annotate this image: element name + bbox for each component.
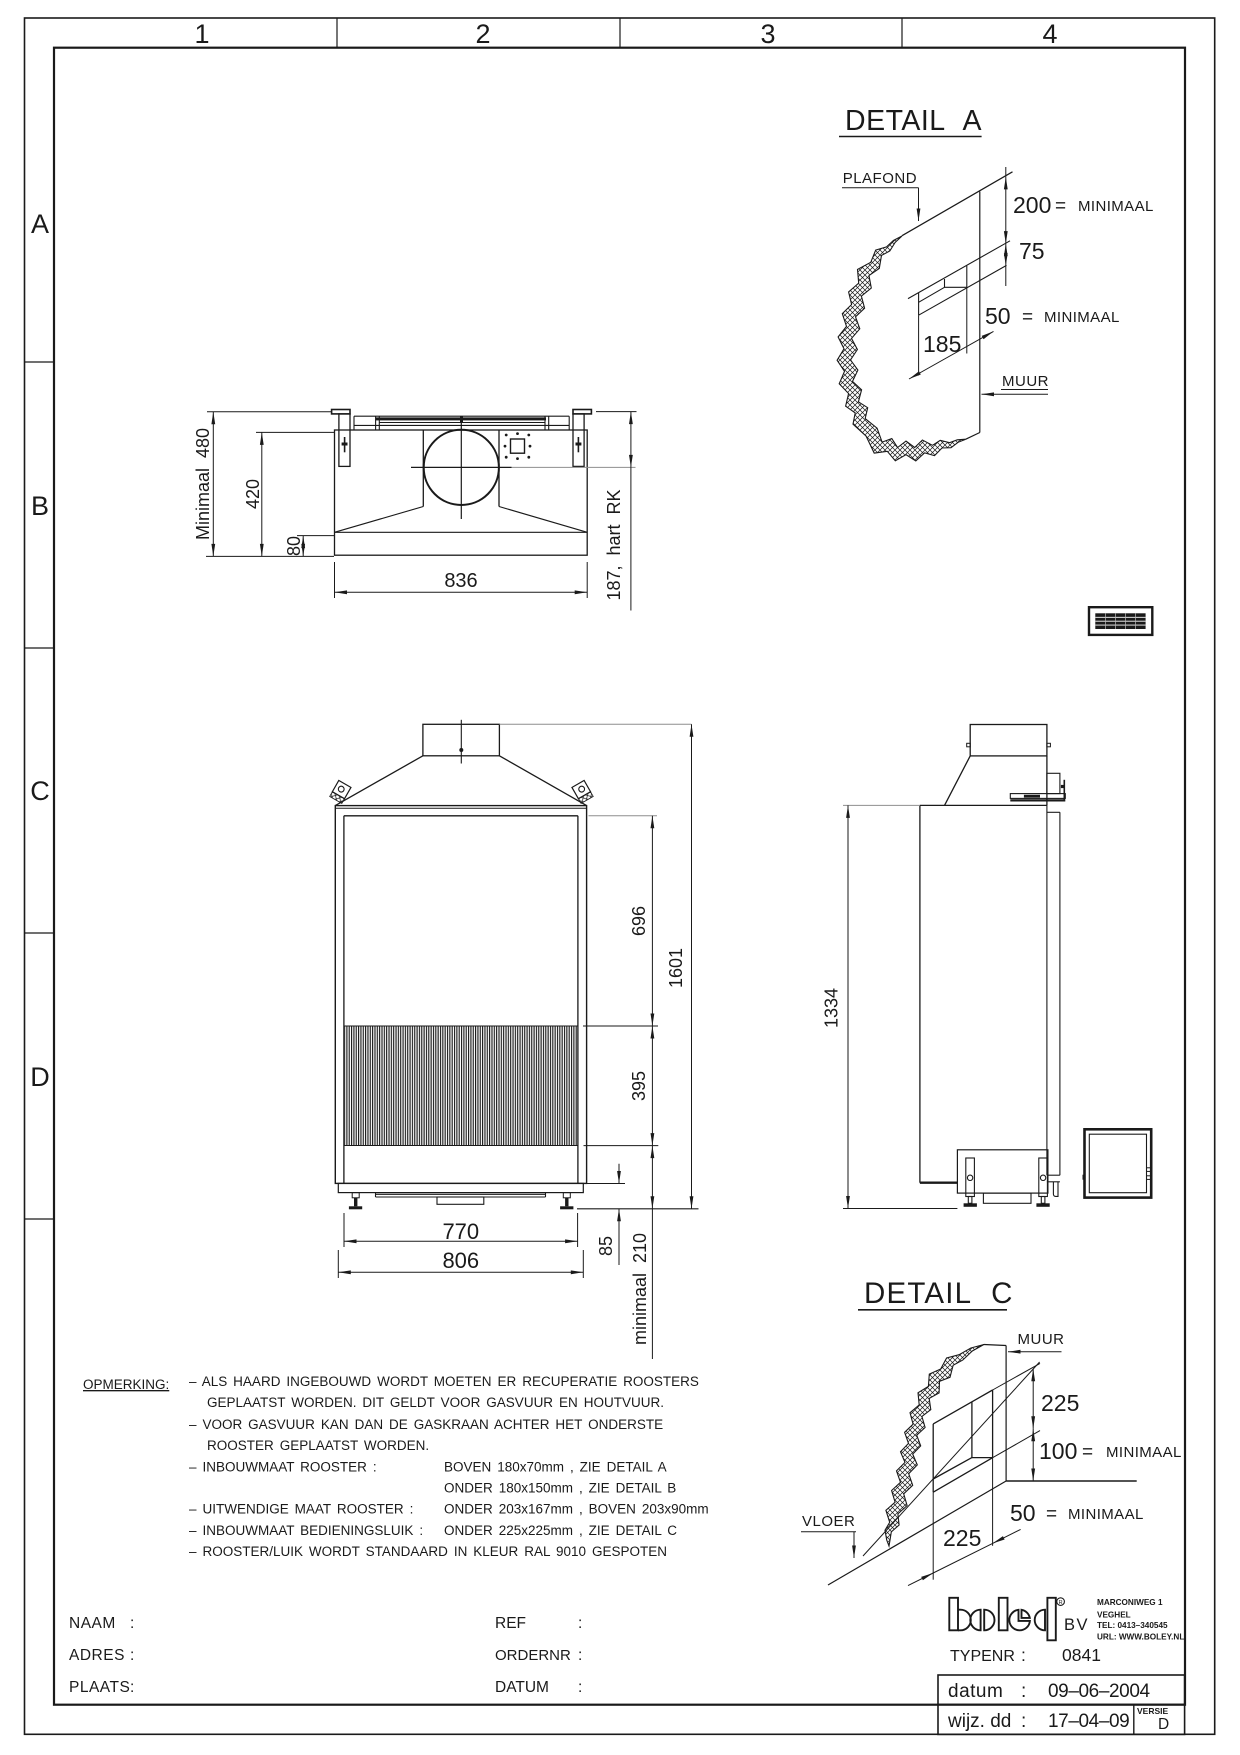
svg-text:MINIMAAL: MINIMAAL bbox=[1106, 1444, 1182, 1461]
svg-text::: : bbox=[1021, 1645, 1026, 1665]
svg-text:PLAATS: PLAATS bbox=[69, 1679, 130, 1696]
svg-text:ORDERNR: ORDERNR bbox=[495, 1647, 571, 1664]
svg-text:DATUM: DATUM bbox=[495, 1679, 549, 1696]
svg-text:50: 50 bbox=[1010, 1500, 1036, 1526]
svg-text:ONDER 225x225mm , ZIE DETA: ONDER 225x225mm , ZIE DETAIL C bbox=[444, 1523, 677, 1538]
svg-text:URL: WWW.BOLEY.NL: URL: WWW.BOLEY.NL bbox=[1097, 1633, 1184, 1642]
svg-text:PLAFOND: PLAFOND bbox=[843, 170, 917, 187]
svg-text:=: = bbox=[1022, 307, 1033, 328]
svg-text:– INBOUWMAAT BEDIENINGSLUIK: – INBOUWMAAT BEDIENINGSLUIK : bbox=[189, 1523, 423, 1538]
svg-text:ROOSTER GEPLAATST WORDEN.: ROOSTER GEPLAATST WORDEN. bbox=[207, 1438, 429, 1453]
svg-text:MINIMAAL: MINIMAAL bbox=[1044, 309, 1120, 326]
svg-text:VERSIE: VERSIE bbox=[1137, 1706, 1169, 1716]
svg-text:VEGHEL: VEGHEL bbox=[1097, 1611, 1131, 1620]
svg-text:– ROOSTER/LUIK WORDT STANDA: – ROOSTER/LUIK WORDT STANDAARD IN KLEUR … bbox=[189, 1544, 667, 1559]
svg-text:1334: 1334 bbox=[822, 988, 842, 1028]
svg-text:BV: BV bbox=[1064, 1616, 1089, 1634]
svg-text::: : bbox=[578, 1615, 582, 1632]
svg-text:D: D bbox=[1158, 1716, 1169, 1733]
svg-text:A: A bbox=[31, 209, 49, 239]
svg-text:225: 225 bbox=[943, 1525, 981, 1551]
svg-text:OPMERKING:: OPMERKING: bbox=[83, 1377, 169, 1392]
svg-text:=: = bbox=[1082, 1442, 1093, 1463]
svg-text:ONDER 180x150mm , ZIE DETA: ONDER 180x150mm , ZIE DETAIL B bbox=[444, 1481, 676, 1496]
svg-text:– UITWENDIGE MAAT ROOSTER: – UITWENDIGE MAAT ROOSTER : bbox=[189, 1502, 413, 1517]
svg-text:185: 185 bbox=[923, 331, 961, 357]
svg-text:1601: 1601 bbox=[666, 948, 686, 988]
svg-text:VLOER: VLOER bbox=[802, 1513, 855, 1530]
svg-text:836: 836 bbox=[444, 570, 477, 592]
svg-text:– ALS HAARD INGEBOUWD WORD: – ALS HAARD INGEBOUWD WORDT MOETEN ER RE… bbox=[189, 1374, 699, 1389]
svg-text:225: 225 bbox=[1041, 1390, 1079, 1416]
svg-text::: : bbox=[578, 1647, 582, 1664]
svg-text::: : bbox=[130, 1615, 134, 1632]
svg-text:806: 806 bbox=[442, 1248, 479, 1273]
svg-text:395: 395 bbox=[629, 1071, 649, 1101]
svg-text:C: C bbox=[30, 776, 50, 806]
svg-text:200: 200 bbox=[1013, 192, 1051, 218]
svg-text:ADRES: ADRES bbox=[69, 1647, 125, 1664]
svg-text:D: D bbox=[30, 1062, 50, 1092]
svg-text:100: 100 bbox=[1039, 1438, 1077, 1464]
svg-text:DETAIL C: DETAIL C bbox=[864, 1277, 1014, 1310]
svg-text:MUUR: MUUR bbox=[1002, 373, 1049, 390]
svg-text:420: 420 bbox=[243, 479, 263, 509]
svg-text::: : bbox=[578, 1679, 582, 1696]
svg-text:TEL: 0413–340545: TEL: 0413–340545 bbox=[1097, 1621, 1168, 1630]
svg-text::: : bbox=[1021, 1711, 1026, 1732]
svg-text::: : bbox=[130, 1647, 134, 1664]
svg-text:– INBOUWMAAT ROOSTER :: – INBOUWMAAT ROOSTER : bbox=[189, 1459, 377, 1474]
svg-text:MUUR: MUUR bbox=[1018, 1331, 1065, 1348]
svg-text:Minimaal 480: Minimaal 480 bbox=[193, 428, 213, 540]
svg-text:BOVEN 180x70mm , ZIE DETAI: BOVEN 180x70mm , ZIE DETAIL A bbox=[444, 1459, 667, 1474]
svg-text:R: R bbox=[1059, 1600, 1063, 1606]
svg-text:187, hart RK: 187, hart RK bbox=[604, 489, 624, 600]
svg-text:datum: datum bbox=[948, 1681, 1003, 1702]
svg-text:85: 85 bbox=[596, 1236, 616, 1256]
svg-text:REF: REF bbox=[495, 1615, 526, 1632]
svg-text:50: 50 bbox=[985, 303, 1011, 329]
svg-text:0841: 0841 bbox=[1062, 1645, 1101, 1665]
svg-text:4: 4 bbox=[1042, 19, 1057, 49]
svg-text:17–04–09: 17–04–09 bbox=[1048, 1711, 1129, 1732]
svg-text:DETAIL A: DETAIL A bbox=[845, 105, 982, 137]
svg-text:B: B bbox=[31, 491, 49, 521]
svg-text:NAAM: NAAM bbox=[69, 1615, 116, 1632]
svg-text:GEPLAATST WORDEN. DIT GELDT: GEPLAATST WORDEN. DIT GELDT VOOR GASVUUR… bbox=[207, 1395, 664, 1410]
svg-text:770: 770 bbox=[442, 1219, 479, 1244]
svg-text:– VOOR GASVUUR KAN DAN DE: – VOOR GASVUUR KAN DAN DE GASKRAAN ACHTE… bbox=[189, 1417, 663, 1432]
svg-text:1: 1 bbox=[194, 19, 209, 49]
svg-text:3: 3 bbox=[760, 19, 775, 49]
svg-text:wijz. dd: wijz. dd bbox=[947, 1711, 1011, 1732]
svg-text::: : bbox=[130, 1679, 134, 1696]
svg-text:2: 2 bbox=[475, 19, 490, 49]
svg-text:75: 75 bbox=[1019, 238, 1045, 264]
svg-text:80: 80 bbox=[284, 536, 304, 556]
svg-text:MINIMAAL: MINIMAAL bbox=[1068, 1506, 1144, 1523]
svg-text:MARCONIWEG 1: MARCONIWEG 1 bbox=[1097, 1598, 1163, 1607]
svg-text:ONDER 203x167mm , BOVEN 20: ONDER 203x167mm , BOVEN 203x90mm bbox=[444, 1502, 709, 1517]
svg-text:=: = bbox=[1046, 1504, 1057, 1525]
svg-text:696: 696 bbox=[629, 906, 649, 936]
svg-text:TYPENR: TYPENR bbox=[950, 1648, 1015, 1665]
svg-text::: : bbox=[1021, 1681, 1026, 1702]
svg-text:=: = bbox=[1055, 196, 1066, 217]
svg-text:09–06–2004: 09–06–2004 bbox=[1048, 1681, 1151, 1702]
svg-text:minimaal 210: minimaal 210 bbox=[630, 1233, 650, 1345]
svg-text:MINIMAAL: MINIMAAL bbox=[1078, 198, 1154, 215]
